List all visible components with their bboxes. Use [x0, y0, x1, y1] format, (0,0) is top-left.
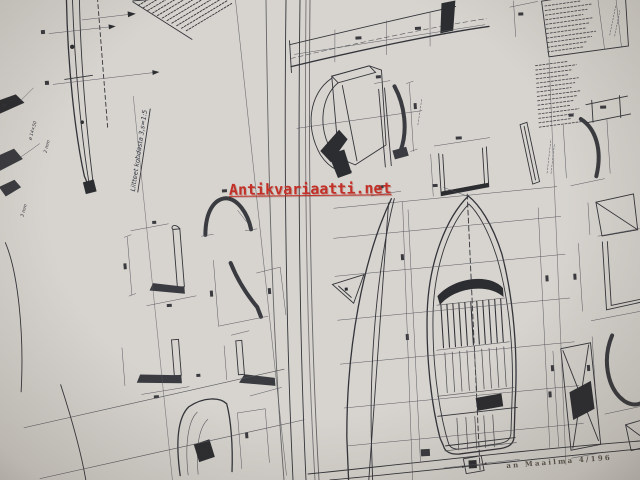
photo-background: [0, 0, 640, 480]
gutter-shadow-right: [314, 0, 356, 480]
book-gutter: [264, 0, 320, 480]
transom-isometric: [293, 63, 426, 181]
book-photo: ø 14×50 2 mm 3 mm Liitteet kohdasta 3,s=…: [0, 0, 640, 480]
gutter-shadow-left: [236, 0, 270, 480]
right-page: [288, 0, 640, 480]
step-profile-2: [223, 329, 282, 398]
profile-curves: [327, 184, 420, 480]
channel-section: [430, 135, 493, 197]
rigging-list-lines: [136, 0, 234, 34]
book-spread: ø 14×50 2 mm 3 mm Liitteet kohdasta 3,s=…: [0, 0, 640, 480]
dinghy-plan-view: [330, 176, 586, 480]
gusset-detail: [174, 395, 270, 476]
hull-silhouette: [0, 192, 308, 480]
right-page-panel-divider: [541, 59, 574, 465]
frame-section-1: [120, 218, 197, 310]
small-sketch: [586, 95, 631, 123]
left-page-paper: [0, 0, 272, 480]
label-hole: ø 14×50: [27, 120, 38, 141]
mast-step-fitting: ø 14×50 2 mm 3 mm: [0, 87, 58, 220]
braced-frame-section: [546, 342, 604, 459]
handwritten-caption: Liitteet kohdasta 3,s=1:5: [129, 108, 150, 192]
step-profile-1: [122, 338, 202, 401]
spar-drawing: [39, 0, 169, 197]
left-page: ø 14×50 2 mm 3 mm Liitteet kohdasta 3,s=…: [0, 0, 308, 480]
label-2mm: 2 mm: [43, 139, 52, 154]
text-paragraph: [535, 61, 582, 127]
materials-table: [541, 0, 629, 57]
rigging-list-block: [131, 0, 235, 44]
hull-profile-strip: [288, 0, 541, 73]
watermark-text: Antikvariaatti.net: [229, 179, 392, 199]
label-3mm: 3 mm: [20, 203, 29, 218]
